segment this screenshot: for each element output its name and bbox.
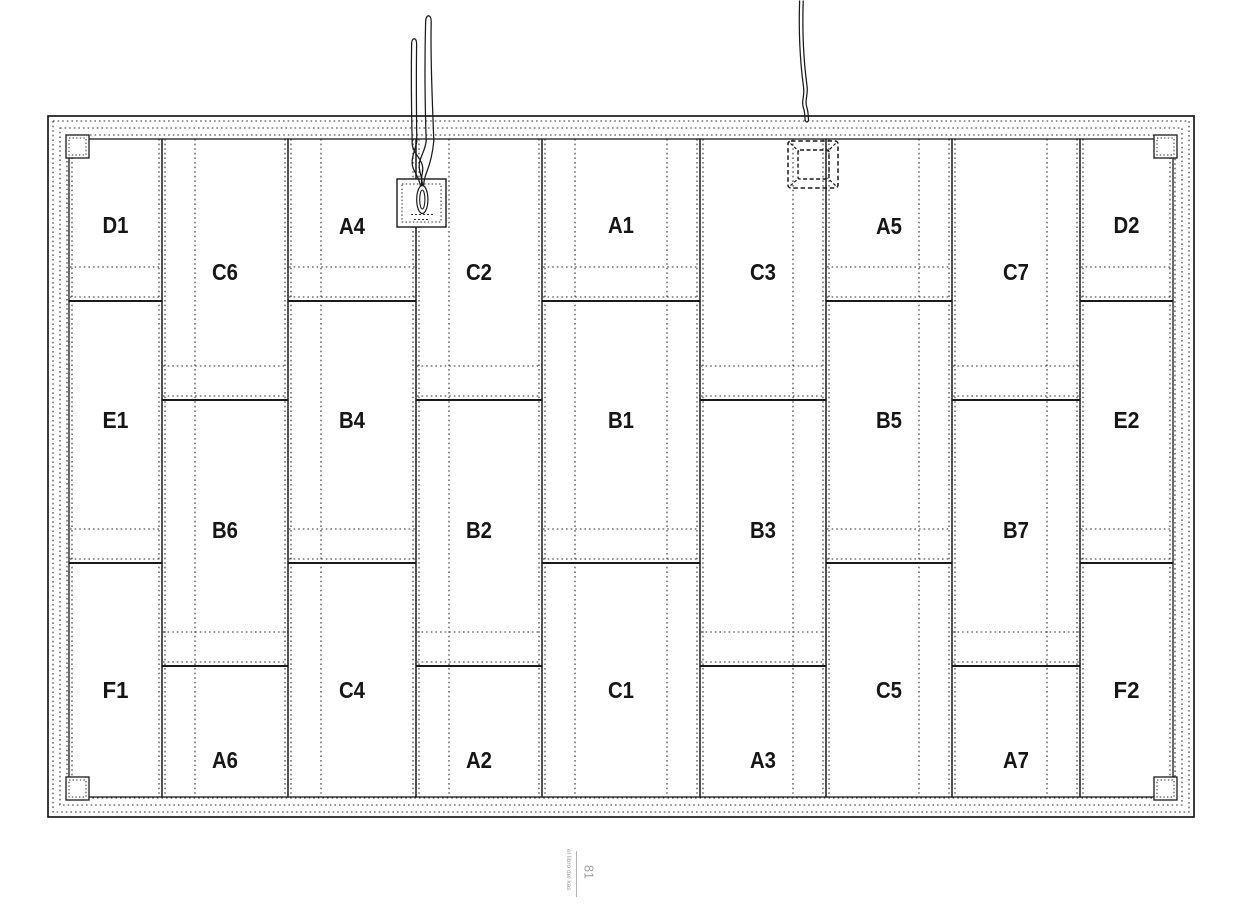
panel-label-C7: C7 [1003, 259, 1029, 285]
footer: el libro del kas 81 [565, 849, 596, 897]
panel-label-A4: A4 [339, 213, 365, 239]
panel-label-D1: D1 [103, 212, 129, 238]
panel-label-F1: F1 [103, 677, 129, 703]
panel-label-A5: A5 [876, 213, 902, 239]
panel-label-C3: C3 [750, 259, 776, 285]
panel-label-E1: E1 [103, 407, 129, 433]
panel-A7 [952, 666, 1080, 797]
panel-label-B4: B4 [339, 407, 365, 433]
panel-label-A6: A6 [212, 747, 238, 773]
panel-label-A1: A1 [608, 212, 634, 238]
panel-label-A2: A2 [466, 747, 492, 773]
panel-label-F2: F2 [1114, 677, 1140, 703]
wire-strand [805, 121, 808, 123]
panel-label-B2: B2 [466, 517, 492, 543]
panel-label-C1: C1 [608, 677, 634, 703]
panel-label-B5: B5 [876, 407, 902, 433]
back-junction-box-diagonal [791, 178, 800, 186]
back-junction-box-diagonal [791, 144, 800, 152]
footer-book-title: el libro del kas [565, 849, 572, 891]
panel-label-E2: E2 [1114, 407, 1140, 433]
wire-strand [411, 39, 416, 141]
wire-strand [803, 1, 809, 121]
panel-label-C2: C2 [466, 259, 492, 285]
panel-label-B6: B6 [212, 517, 238, 543]
panel-label-C5: C5 [876, 677, 902, 703]
panel-label-C4: C4 [339, 677, 365, 703]
panel-label-B3: B3 [750, 517, 776, 543]
panel-layout-drawing: D1E1F1C6B6A6A4B4C4C2B2A2A1B1C1C3B3A3A5B5… [0, 0, 1256, 904]
panel-A3 [700, 666, 826, 797]
panel-label-C6: C6 [212, 259, 238, 285]
panel-label-B1: B1 [608, 407, 634, 433]
footer-page-number: 81 [582, 865, 596, 879]
back-junction-box-inner [798, 150, 829, 179]
wire-strand [425, 16, 434, 141]
generated-drawing: D1E1F1C6B6A6A4B4C4C2B2A2A1B1C1C3B3A3A5B5… [48, 1, 1194, 817]
panel-A2 [416, 666, 542, 797]
panel-label-A3: A3 [750, 747, 776, 773]
page: D1E1F1C6B6A6A4B4C4C2B2A2A1B1C1C3B3A3A5B5… [0, 0, 1256, 904]
panel-A6 [162, 666, 288, 797]
panel-label-A7: A7 [1003, 747, 1029, 773]
panel-label-D2: D2 [1114, 212, 1140, 238]
panel-label-B7: B7 [1003, 517, 1029, 543]
